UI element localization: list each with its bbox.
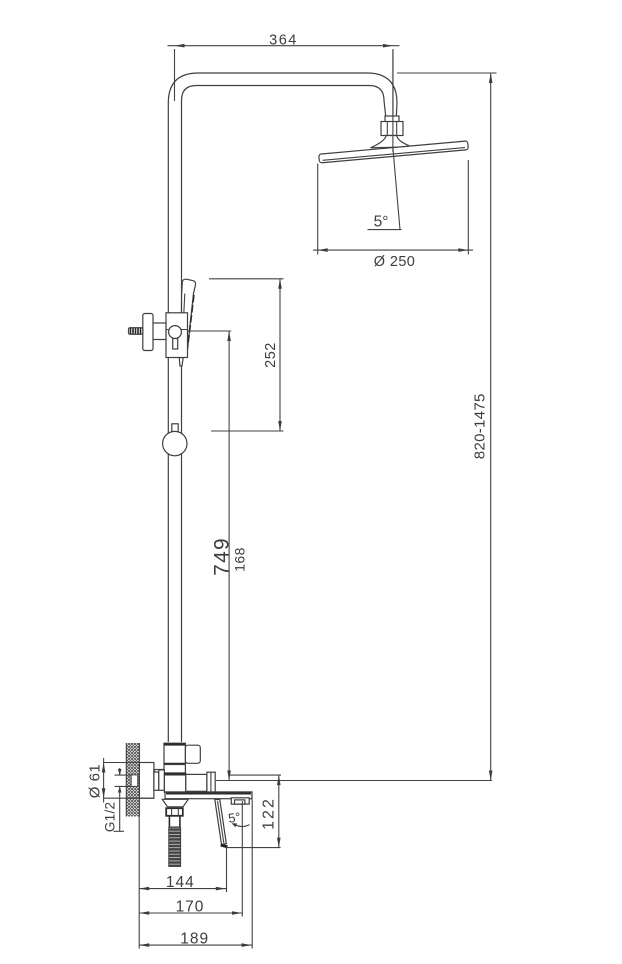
svg-text:Ø 250: Ø 250 bbox=[374, 254, 416, 270]
svg-text:Ø 61: Ø 61 bbox=[86, 764, 103, 799]
svg-text:820-1475: 820-1475 bbox=[472, 393, 489, 459]
svg-text:252: 252 bbox=[263, 342, 279, 368]
svg-text:144: 144 bbox=[166, 874, 195, 891]
svg-text:168: 168 bbox=[232, 547, 248, 572]
svg-text:749: 749 bbox=[210, 537, 233, 576]
svg-text:5°: 5° bbox=[374, 213, 389, 230]
svg-text:122: 122 bbox=[261, 797, 278, 830]
svg-text:364: 364 bbox=[269, 33, 298, 49]
svg-text:189: 189 bbox=[180, 930, 209, 947]
svg-text:170: 170 bbox=[176, 898, 205, 915]
svg-text:G1/2: G1/2 bbox=[103, 802, 118, 832]
